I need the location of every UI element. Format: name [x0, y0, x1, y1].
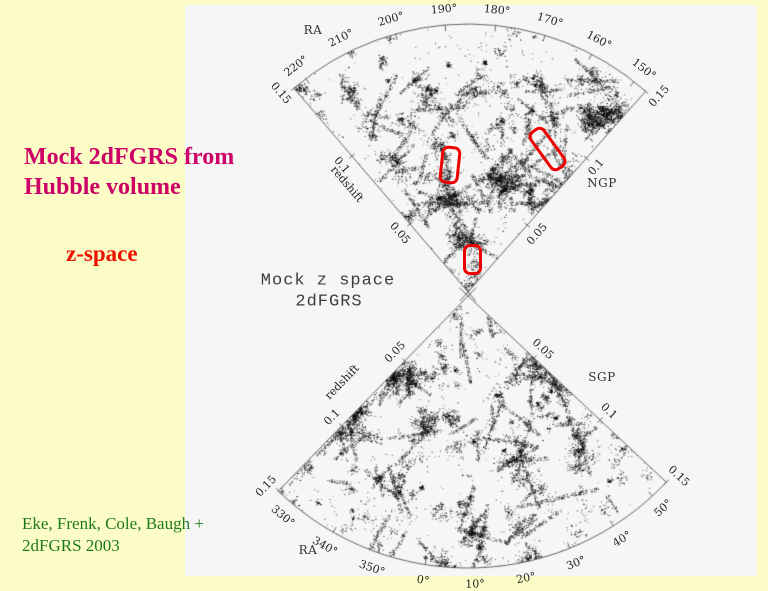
ngp-pole-label: NGP — [587, 176, 617, 190]
ra-axis-label-top: RA — [304, 23, 323, 37]
ra-tick-label: 0° — [416, 573, 430, 588]
plot-title-line1: Mock z space — [261, 272, 395, 291]
highlight-box — [463, 244, 482, 275]
slide-subtitle: z-space — [66, 241, 138, 267]
ra-tick-label: 180° — [483, 2, 511, 18]
ra-axis-label-bottom: RA — [299, 543, 318, 557]
highlight-box — [438, 145, 462, 185]
credit-block: Eke, Frenk, Cole, Baugh + 2dFGRS 2003 — [22, 513, 204, 557]
ra-tick-label: 190° — [430, 1, 458, 16]
credit-line2: 2dFGRS 2003 — [22, 535, 204, 557]
slide-title-line2: Hubble volume — [24, 172, 234, 202]
ra-tick-label: 20° — [515, 570, 537, 587]
credit-line1: Eke, Frenk, Cole, Baugh + — [22, 513, 204, 535]
ra-tick-label: 10° — [465, 577, 485, 590]
plot-title-line2: 2dFGRS — [295, 293, 362, 312]
slide-title: Mock 2dFGRS from Hubble volume — [24, 142, 234, 202]
slide: 220°210°200°190°180°170°160°150°0.050.10… — [0, 0, 768, 576]
slide-title-line1: Mock 2dFGRS from — [24, 142, 234, 172]
sgp-pole-label: SGP — [588, 370, 615, 384]
